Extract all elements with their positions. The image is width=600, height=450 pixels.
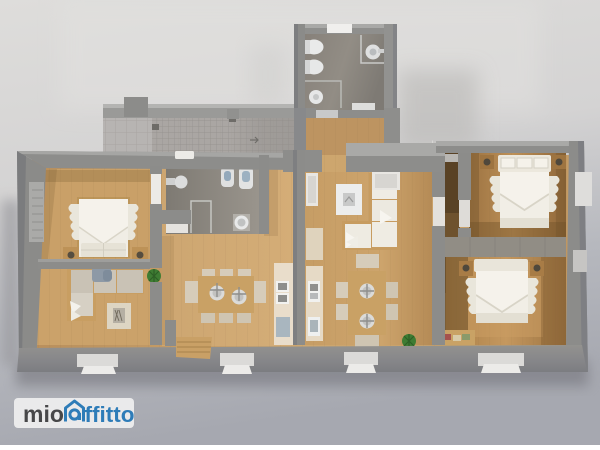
svg-text:mio: mio (23, 401, 64, 427)
svg-text:ffitto: ffitto (85, 402, 135, 427)
